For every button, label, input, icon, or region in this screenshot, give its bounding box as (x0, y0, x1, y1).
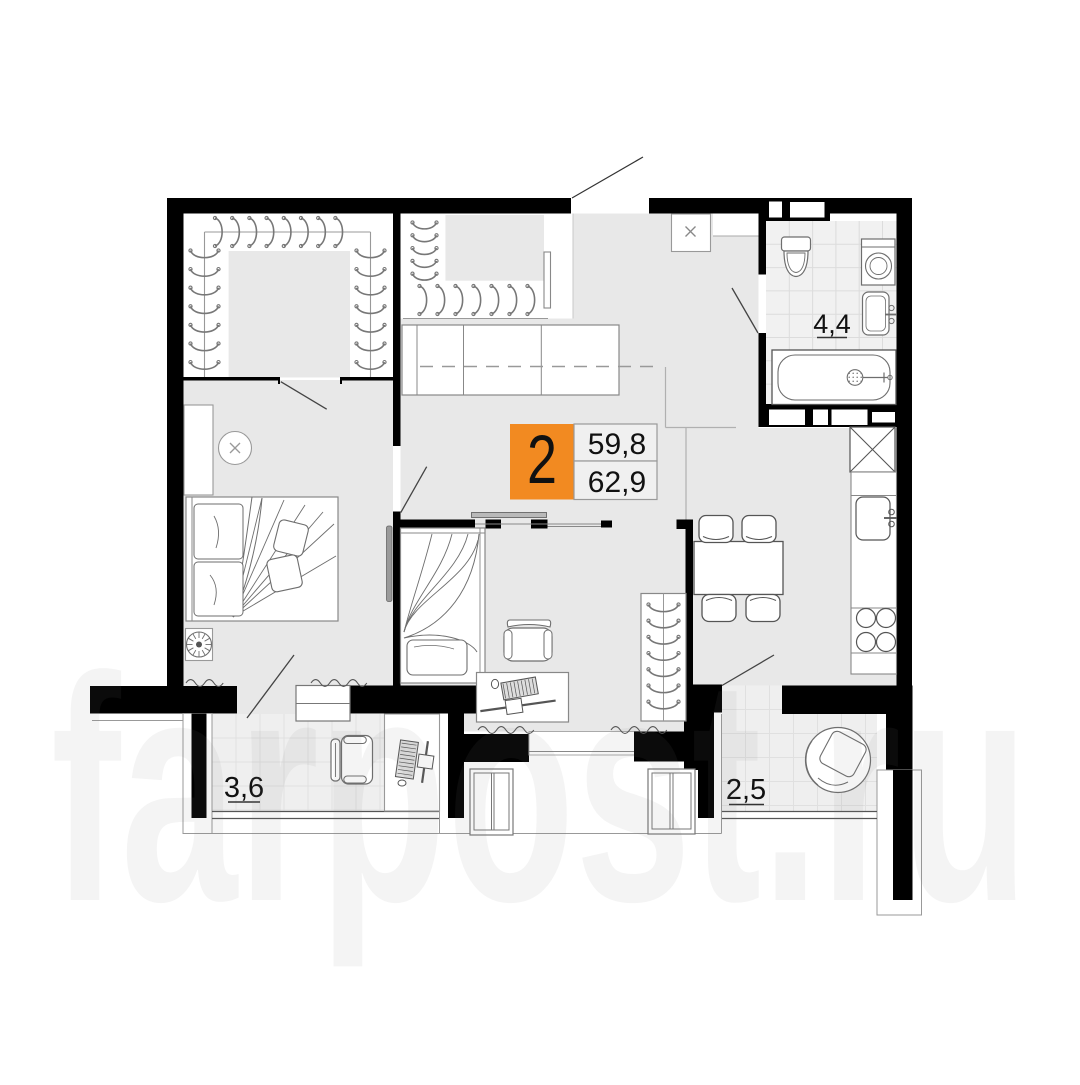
svg-text:62,9: 62,9 (588, 466, 646, 499)
svg-text:4,4: 4,4 (813, 309, 851, 339)
svg-text:farpost.ru: farpost.ru (51, 611, 1029, 970)
svg-text:59,8: 59,8 (588, 428, 646, 461)
svg-text:2: 2 (527, 421, 557, 498)
